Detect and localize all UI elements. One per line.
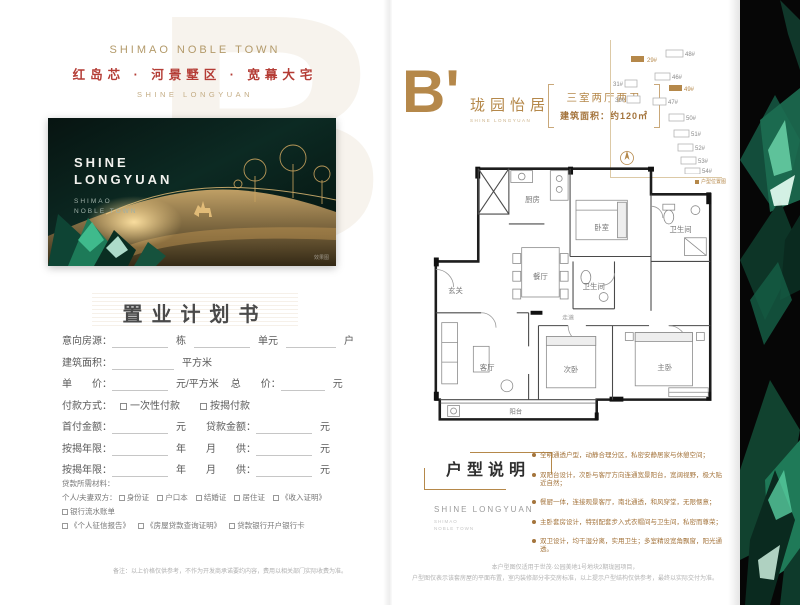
form-row-downpayment: 首付金额： 元 贷款金额： 元 — [62, 422, 358, 434]
checkbox-icon — [157, 495, 163, 501]
site-buildings — [625, 50, 700, 174]
bullet-item: 双阳台设计，次卧与客厅方向连通宽景阳台，宽阔视野，极大贴近自然； — [532, 472, 726, 488]
loan-materials: 贷款所需材料： 个人/夫妻双方： 身份证 户口本 结婚证 居住证 《收入证明》 … — [62, 477, 368, 533]
building-label: 48# — [685, 52, 696, 58]
materials-line-2: 《个人征信报告》 《房屋贷款查询证明》 贷款银行开户银行卡 — [62, 519, 368, 533]
room-label-kitchen: 厨房 — [525, 195, 540, 204]
bullet-dot-icon — [532, 500, 536, 504]
field-label: 建筑面积： — [62, 358, 112, 370]
checkbox-icon — [234, 495, 240, 501]
checkbox-icon — [200, 403, 207, 410]
materials-label: 个人/夫妻双方： — [62, 493, 117, 502]
room-label-corridor: 走道 — [562, 314, 574, 322]
field-label: 年 — [176, 444, 186, 456]
room-label-second-bedroom: 次卧 — [564, 365, 579, 374]
building-label: 29# — [647, 58, 658, 64]
side-panel-vertical-title: SHINE — [763, 34, 800, 214]
form-row-payment: 付款方式： 一次性付款 按揭付款 — [62, 401, 358, 413]
bullet-item: 双卫设计，均干湿分离，实用卫生；多室精设宽角飘窗，阳光通透。 — [532, 538, 726, 554]
brand-sub-en: SHINE LONGYUAN — [0, 90, 390, 99]
description-bullets: 全明通透户型，动静合理分区，私密安静居家与休憩空间； 双阳台设计，次卧与客厅方向… — [532, 452, 726, 566]
field-label: 贷款金额： — [206, 422, 256, 434]
bullet-dot-icon — [532, 473, 536, 477]
payment-option-full: 一次性付款 — [120, 401, 180, 413]
field-label: 年 — [176, 465, 186, 477]
blank-line — [256, 445, 312, 456]
field-label: 总 价： — [231, 379, 281, 391]
checkbox-icon — [62, 523, 68, 529]
field-label: 平方米 — [182, 358, 212, 370]
building-label: 47# — [668, 100, 679, 106]
purchase-plan-form: 意向房源： 栋 单元 户 建筑面积： 平方米 单 价： 元/平方米 总 价： 元… — [62, 336, 358, 487]
field-label: 元/平方米 — [176, 379, 219, 391]
checkbox-icon — [120, 403, 127, 410]
material-item: 《个人征信报告》 — [62, 521, 130, 530]
material-item: 结婚证 — [196, 493, 227, 502]
room-label-hall: 玄关 — [448, 286, 463, 295]
floor-plan-svg: 厨房 餐厅 玄关 卧室 卫生间 卫生间 客厅 次卧 主卧 阳台 走道 — [422, 162, 728, 430]
material-item: 身份证 — [119, 493, 150, 502]
material-item: 贷款银行开户银行卡 — [229, 521, 305, 530]
blank-line — [194, 337, 250, 348]
blank-line — [112, 423, 168, 434]
payment-option-mortgage: 按揭付款 — [200, 401, 250, 413]
field-label: 元 — [176, 422, 186, 434]
materials-line-1: 个人/夫妻双方： 身份证 户口本 结婚证 居住证 《收入证明》 银行流水账单 — [62, 491, 368, 519]
field-label: 元 — [320, 422, 330, 434]
unit-type-letter: B' — [402, 62, 460, 122]
hero-credit-note: 效果图 — [314, 254, 329, 261]
field-label: 户 — [344, 336, 354, 348]
building-label: 50# — [686, 116, 697, 122]
form-row-term-2: 按揭年限： 年 月 供： 元 — [62, 465, 358, 477]
form-row-area: 建筑面积： 平方米 — [62, 358, 358, 370]
purchase-plan-title: 置业计划书 — [0, 298, 390, 327]
checkbox-icon — [138, 523, 144, 529]
field-label: 意向房源： — [62, 336, 112, 348]
furniture — [442, 171, 709, 417]
building-label: 52# — [695, 146, 706, 152]
unit-name: 珑园怡居 SHINE LONGYUAN — [470, 94, 550, 123]
form-row-term-1: 按揭年限： 年 月 供： 元 — [62, 444, 358, 456]
field-label: 元 — [333, 379, 343, 391]
room-label-dining: 餐厅 — [533, 272, 548, 281]
form-row-price: 单 价： 元/平方米 总 价： 元 — [62, 379, 358, 391]
checkbox-icon — [273, 495, 279, 501]
field-label: 单 价： — [62, 379, 112, 391]
building-label: 51# — [691, 132, 702, 138]
blank-line — [256, 466, 312, 477]
floor-plan: 厨房 餐厅 玄关 卧室 卫生间 卫生间 客厅 次卧 主卧 阳台 走道 — [422, 162, 728, 430]
material-item: 银行流水账单 — [62, 507, 115, 516]
checkbox-icon — [196, 495, 202, 501]
building-label: 49# — [684, 87, 695, 93]
field-label: 按揭年限： — [62, 444, 112, 456]
hero-image: SHINE LONGYUAN SHIMAO NOBLE TOWN 效果图 — [48, 118, 336, 266]
bullet-dot-icon — [532, 453, 536, 457]
blank-line — [112, 466, 168, 477]
blank-line — [286, 337, 336, 348]
site-plan: 29# 48# 46# 49# 31# 32# 47# 50# 51# 52# … — [610, 40, 722, 178]
brand-header: SHIMAO NOBLE TOWN 红岛芯 · 河景墅区 · 宽幕大宅 SHIN… — [0, 44, 390, 99]
building-label: 46# — [672, 75, 683, 81]
form-row-intent: 意向房源： 栋 单元 户 — [62, 336, 358, 348]
bullet-item: 全明通透户型，动静合理分区，私密安静居家与休憩空间； — [532, 452, 726, 460]
material-item: 《收入证明》 — [273, 493, 326, 502]
checkbox-icon — [62, 509, 68, 515]
material-item: 《房屋贷款查询证明》 — [138, 521, 221, 530]
right-page: B' 珑园怡居 SHINE LONGYUAN 三室两厅两卫 建筑面积：约120㎡ — [390, 0, 740, 605]
page-fold-shadow — [383, 0, 392, 605]
field-label: 月 供： — [206, 465, 256, 477]
field-label: 单元 — [258, 336, 278, 348]
room-label-master: 主卧 — [657, 363, 672, 372]
field-label: 元 — [320, 444, 330, 456]
hero-sub-line2: NOBLE TOWN — [74, 207, 172, 217]
brochure-spread: B' SHIMAO NOBLE TOWN 红岛芯 · 河景墅区 · 宽幕大宅 S… — [0, 0, 800, 605]
bullet-item: 餐厨一体，连接观景客厅，南北通透，和风穿堂，无限惬意； — [532, 499, 726, 507]
field-label: 首付金额： — [62, 422, 112, 434]
hero-title-line1: SHINE — [74, 154, 172, 171]
building-label: 31# — [613, 82, 624, 88]
page-edge-shadow — [728, 0, 740, 605]
bullet-dot-icon — [532, 539, 536, 543]
blank-line — [112, 359, 174, 370]
description-brand-sub: SHIMAO NOBLE TOWN — [434, 518, 534, 532]
field-label: 月 供： — [206, 444, 256, 456]
room-label-bedroom: 卧室 — [594, 223, 609, 232]
building-label: 32# — [615, 98, 626, 104]
bullet-dot-icon — [532, 520, 536, 524]
field-label: 按揭年限： — [62, 465, 112, 477]
hero-title: SHINE LONGYUAN — [74, 154, 172, 188]
blank-line — [112, 380, 168, 391]
unit-name-en: SHINE LONGYUAN — [470, 118, 550, 123]
hero-title-line2: LONGYUAN — [74, 171, 172, 188]
hero-sub-line1: SHIMAO — [74, 197, 172, 207]
unit-description-title: 户型说明 — [430, 452, 546, 490]
right-page-footnote: 本户型图仅适用于世茂·公园美地1号地块2期珑园项目， 户型图仅表示该套房屋的平面… — [390, 563, 740, 585]
materials-heading: 贷款所需材料： — [62, 477, 368, 491]
field-label: 付款方式： — [62, 401, 112, 413]
brand-name-en: SHIMAO NOBLE TOWN — [0, 44, 390, 56]
material-item: 居住证 — [234, 493, 265, 502]
blank-line — [112, 445, 168, 456]
checkbox-icon — [119, 495, 125, 501]
room-label-bath1: 卫生间 — [583, 282, 605, 291]
unit-name-cn: 珑园怡居 — [470, 94, 550, 115]
description-brand: SHINE LONGYUAN SHIMAO NOBLE TOWN — [434, 505, 534, 532]
left-page-footnote: 备注：以上价格仅供参考，不作为开发商承诺要约内容，费用以相关部门实际收费为准。 — [113, 566, 347, 575]
room-label-balcony: 阳台 — [509, 406, 522, 415]
hero-subtitle: SHIMAO NOBLE TOWN — [74, 197, 172, 217]
hero-text: SHINE LONGYUAN SHIMAO NOBLE TOWN — [74, 154, 172, 217]
blank-line — [112, 337, 168, 348]
bullet-item: 主卧套房设计，特别配套步入式衣帽间与卫生间，私密而尊荣； — [532, 519, 726, 527]
left-page: B' SHIMAO NOBLE TOWN 红岛芯 · 河景墅区 · 宽幕大宅 S… — [0, 0, 390, 605]
field-label: 栋 — [176, 336, 186, 348]
room-label-bath2: 卫生间 — [670, 225, 692, 234]
checkbox-icon — [229, 523, 235, 529]
description-brand-en: SHINE LONGYUAN — [434, 505, 534, 514]
brand-tagline: 红岛芯 · 河景墅区 · 宽幕大宅 — [0, 64, 390, 83]
material-item: 户口本 — [157, 493, 188, 502]
field-label: 元 — [320, 465, 330, 477]
site-plan-svg: 29# 48# 46# 49# 31# 32# 47# 50# 51# 52# … — [611, 40, 723, 174]
side-panel: SHINE — [740, 0, 800, 605]
blank-line — [256, 423, 312, 434]
room-label-living: 客厅 — [480, 363, 495, 372]
blank-line — [281, 380, 325, 391]
